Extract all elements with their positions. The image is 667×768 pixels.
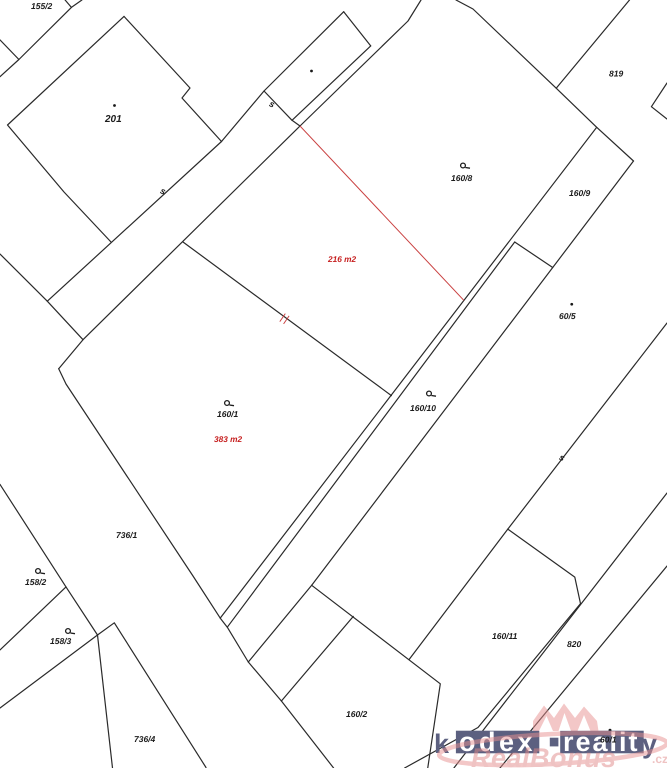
svg-text:201: 201: [104, 114, 122, 125]
svg-text:160/8: 160/8: [451, 173, 473, 183]
svg-text:.cz: .cz: [652, 752, 667, 766]
svg-text:160/2: 160/2: [346, 709, 368, 719]
svg-text:736/1: 736/1: [116, 530, 138, 540]
svg-text:158/3: 158/3: [50, 636, 72, 646]
svg-text:819: 819: [609, 69, 623, 79]
svg-text:216 m2: 216 m2: [327, 254, 357, 264]
svg-text:158/2: 158/2: [25, 577, 47, 587]
svg-text:160/11: 160/11: [492, 631, 518, 641]
svg-text:155/2: 155/2: [31, 1, 53, 11]
svg-text:820: 820: [567, 639, 581, 649]
svg-text:160/1: 160/1: [217, 409, 239, 419]
svg-text:k: k: [434, 729, 450, 759]
svg-text:383 m2: 383 m2: [214, 434, 243, 444]
svg-text:736/4: 736/4: [134, 734, 156, 744]
svg-text:60/1: 60/1: [600, 735, 617, 745]
svg-text:RealBonus: RealBonus: [471, 743, 617, 768]
svg-text:160/9: 160/9: [569, 188, 591, 198]
svg-text:160/10: 160/10: [410, 403, 436, 413]
svg-text:60/5: 60/5: [559, 311, 576, 321]
